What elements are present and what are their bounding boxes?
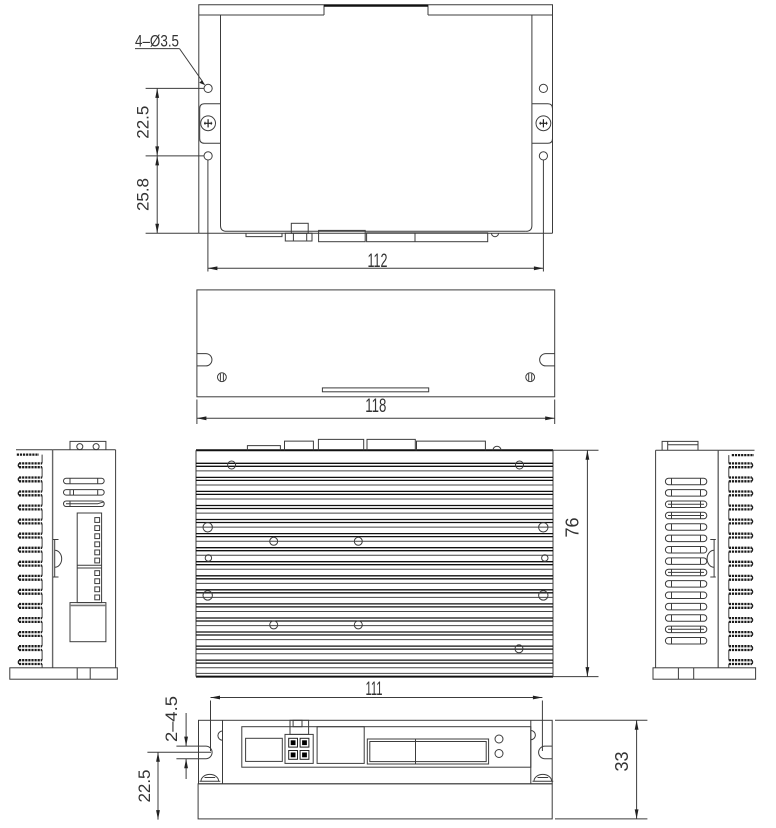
svg-text:22.5: 22.5: [133, 106, 152, 139]
svg-text:22.5: 22.5: [135, 770, 154, 803]
svg-text:33: 33: [612, 752, 632, 772]
svg-text:111: 111: [366, 679, 383, 700]
svg-text:4–Ø3.5: 4–Ø3.5: [135, 33, 179, 51]
svg-text:112: 112: [368, 251, 388, 272]
svg-text:2–4.5: 2–4.5: [162, 696, 181, 742]
svg-text:25.8: 25.8: [133, 178, 152, 211]
svg-text:76: 76: [563, 518, 583, 538]
svg-text:118: 118: [365, 396, 386, 417]
